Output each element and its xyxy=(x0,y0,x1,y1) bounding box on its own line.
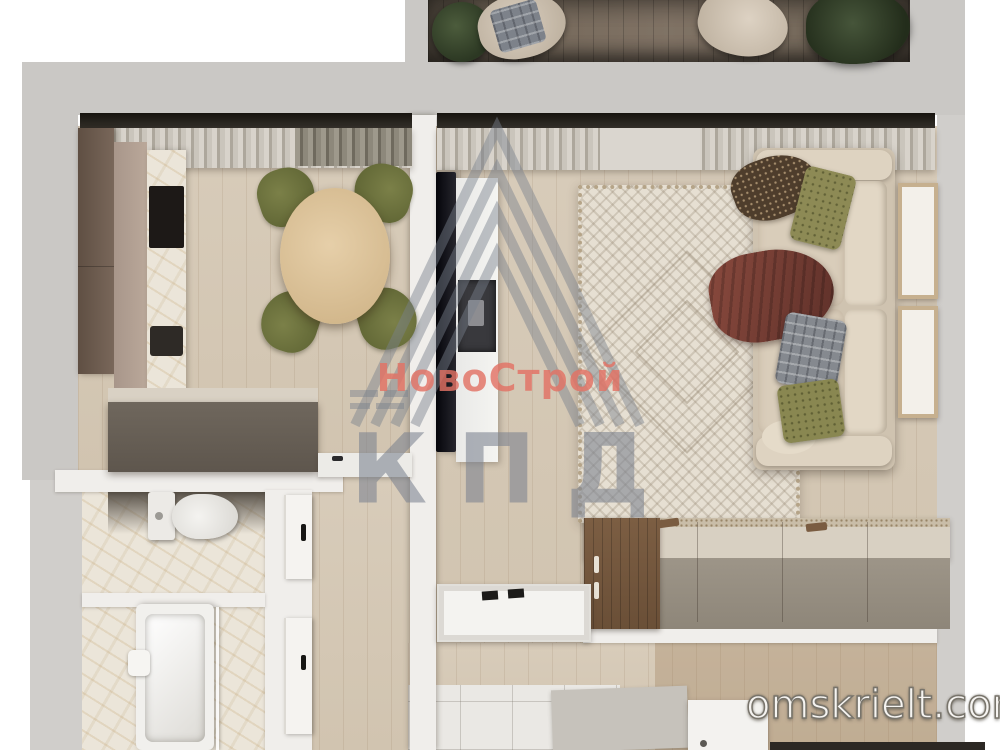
wall-living-bottom xyxy=(583,627,937,643)
door-bathroom-handle xyxy=(301,655,306,670)
entry-mat xyxy=(770,742,985,750)
sideboard-seam-1 xyxy=(697,522,698,622)
tv xyxy=(436,172,456,452)
kitchen-base-cabinets xyxy=(114,142,147,392)
artwork-canvas xyxy=(902,310,934,414)
artwork-frame-bottom xyxy=(898,306,938,418)
watermark-brand-abbr: КПД xyxy=(300,415,700,526)
hallway-mat xyxy=(551,686,689,750)
kitchen-tall-cabinet-seam xyxy=(78,205,114,267)
balcony-wall-right xyxy=(910,0,965,62)
outer-wall-left-upper xyxy=(22,62,78,480)
hallway-cabinet-knob xyxy=(700,740,707,747)
console-shelf-item xyxy=(468,300,484,326)
artwork-frame-top xyxy=(898,183,938,299)
kitchen-island-front xyxy=(108,402,318,472)
artwork-canvas xyxy=(902,187,934,295)
kitchen-curtain-rod xyxy=(80,113,412,128)
shoe-tray-slot-1 xyxy=(482,590,499,600)
outer-wall-left-lower xyxy=(30,480,82,750)
kitchen-curtain-dark-panel xyxy=(295,128,412,166)
sofa-back-cushion-2 xyxy=(845,309,887,434)
sideboard-front xyxy=(660,558,950,629)
balcony-wall-left xyxy=(405,0,428,62)
sideboard-wood-end xyxy=(584,518,660,629)
kitchen-sink xyxy=(150,326,183,356)
living-curtain-rod xyxy=(437,113,935,128)
door-wc-handle xyxy=(301,524,306,541)
cooktop xyxy=(149,186,184,248)
toilet-bowl xyxy=(172,494,238,539)
sideboard-end-handle-1 xyxy=(594,556,599,573)
flower-bouquet xyxy=(316,224,368,276)
outer-wall-top-band xyxy=(22,62,965,115)
sideboard-seam-3 xyxy=(867,522,868,622)
watermark-brand-name: НовоСтрой xyxy=(330,356,670,400)
shower-glass-panel xyxy=(216,607,219,750)
bathtub xyxy=(136,604,214,750)
pillow-olive-bottom xyxy=(776,378,845,444)
sideboard-seam-2 xyxy=(782,522,783,622)
outer-wall-right xyxy=(937,115,965,750)
toilet-flush-button xyxy=(155,512,163,520)
shoe-tray-slot-2 xyxy=(508,588,525,598)
living-curtain-gap xyxy=(600,128,700,170)
site-watermark: omskrielt.com xyxy=(746,682,1000,728)
floorplan-render: НовоСтрой КПД omskrielt.com xyxy=(0,0,1000,750)
sideboard-end-handle-2 xyxy=(594,582,599,599)
door-bathroom xyxy=(284,618,312,734)
bath-handle xyxy=(128,650,150,676)
bathtub-basin xyxy=(145,614,205,742)
